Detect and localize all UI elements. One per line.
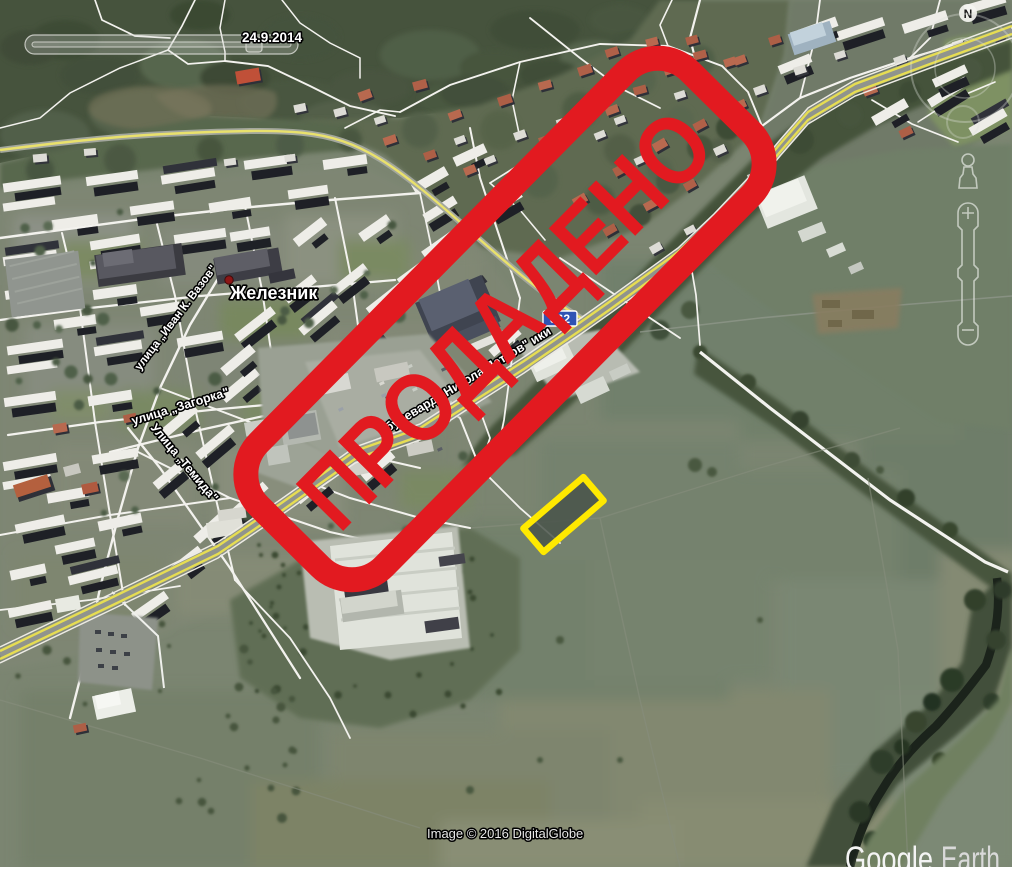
svg-text:Железник: Железник [229,283,318,303]
svg-text:Google: Google [845,840,933,867]
svg-text:Earth: Earth [941,840,1000,867]
svg-text:24.9.2014: 24.9.2014 [242,30,303,45]
svg-text:Image © 2016 DigitalGlobe: Image © 2016 DigitalGlobe [427,826,583,841]
